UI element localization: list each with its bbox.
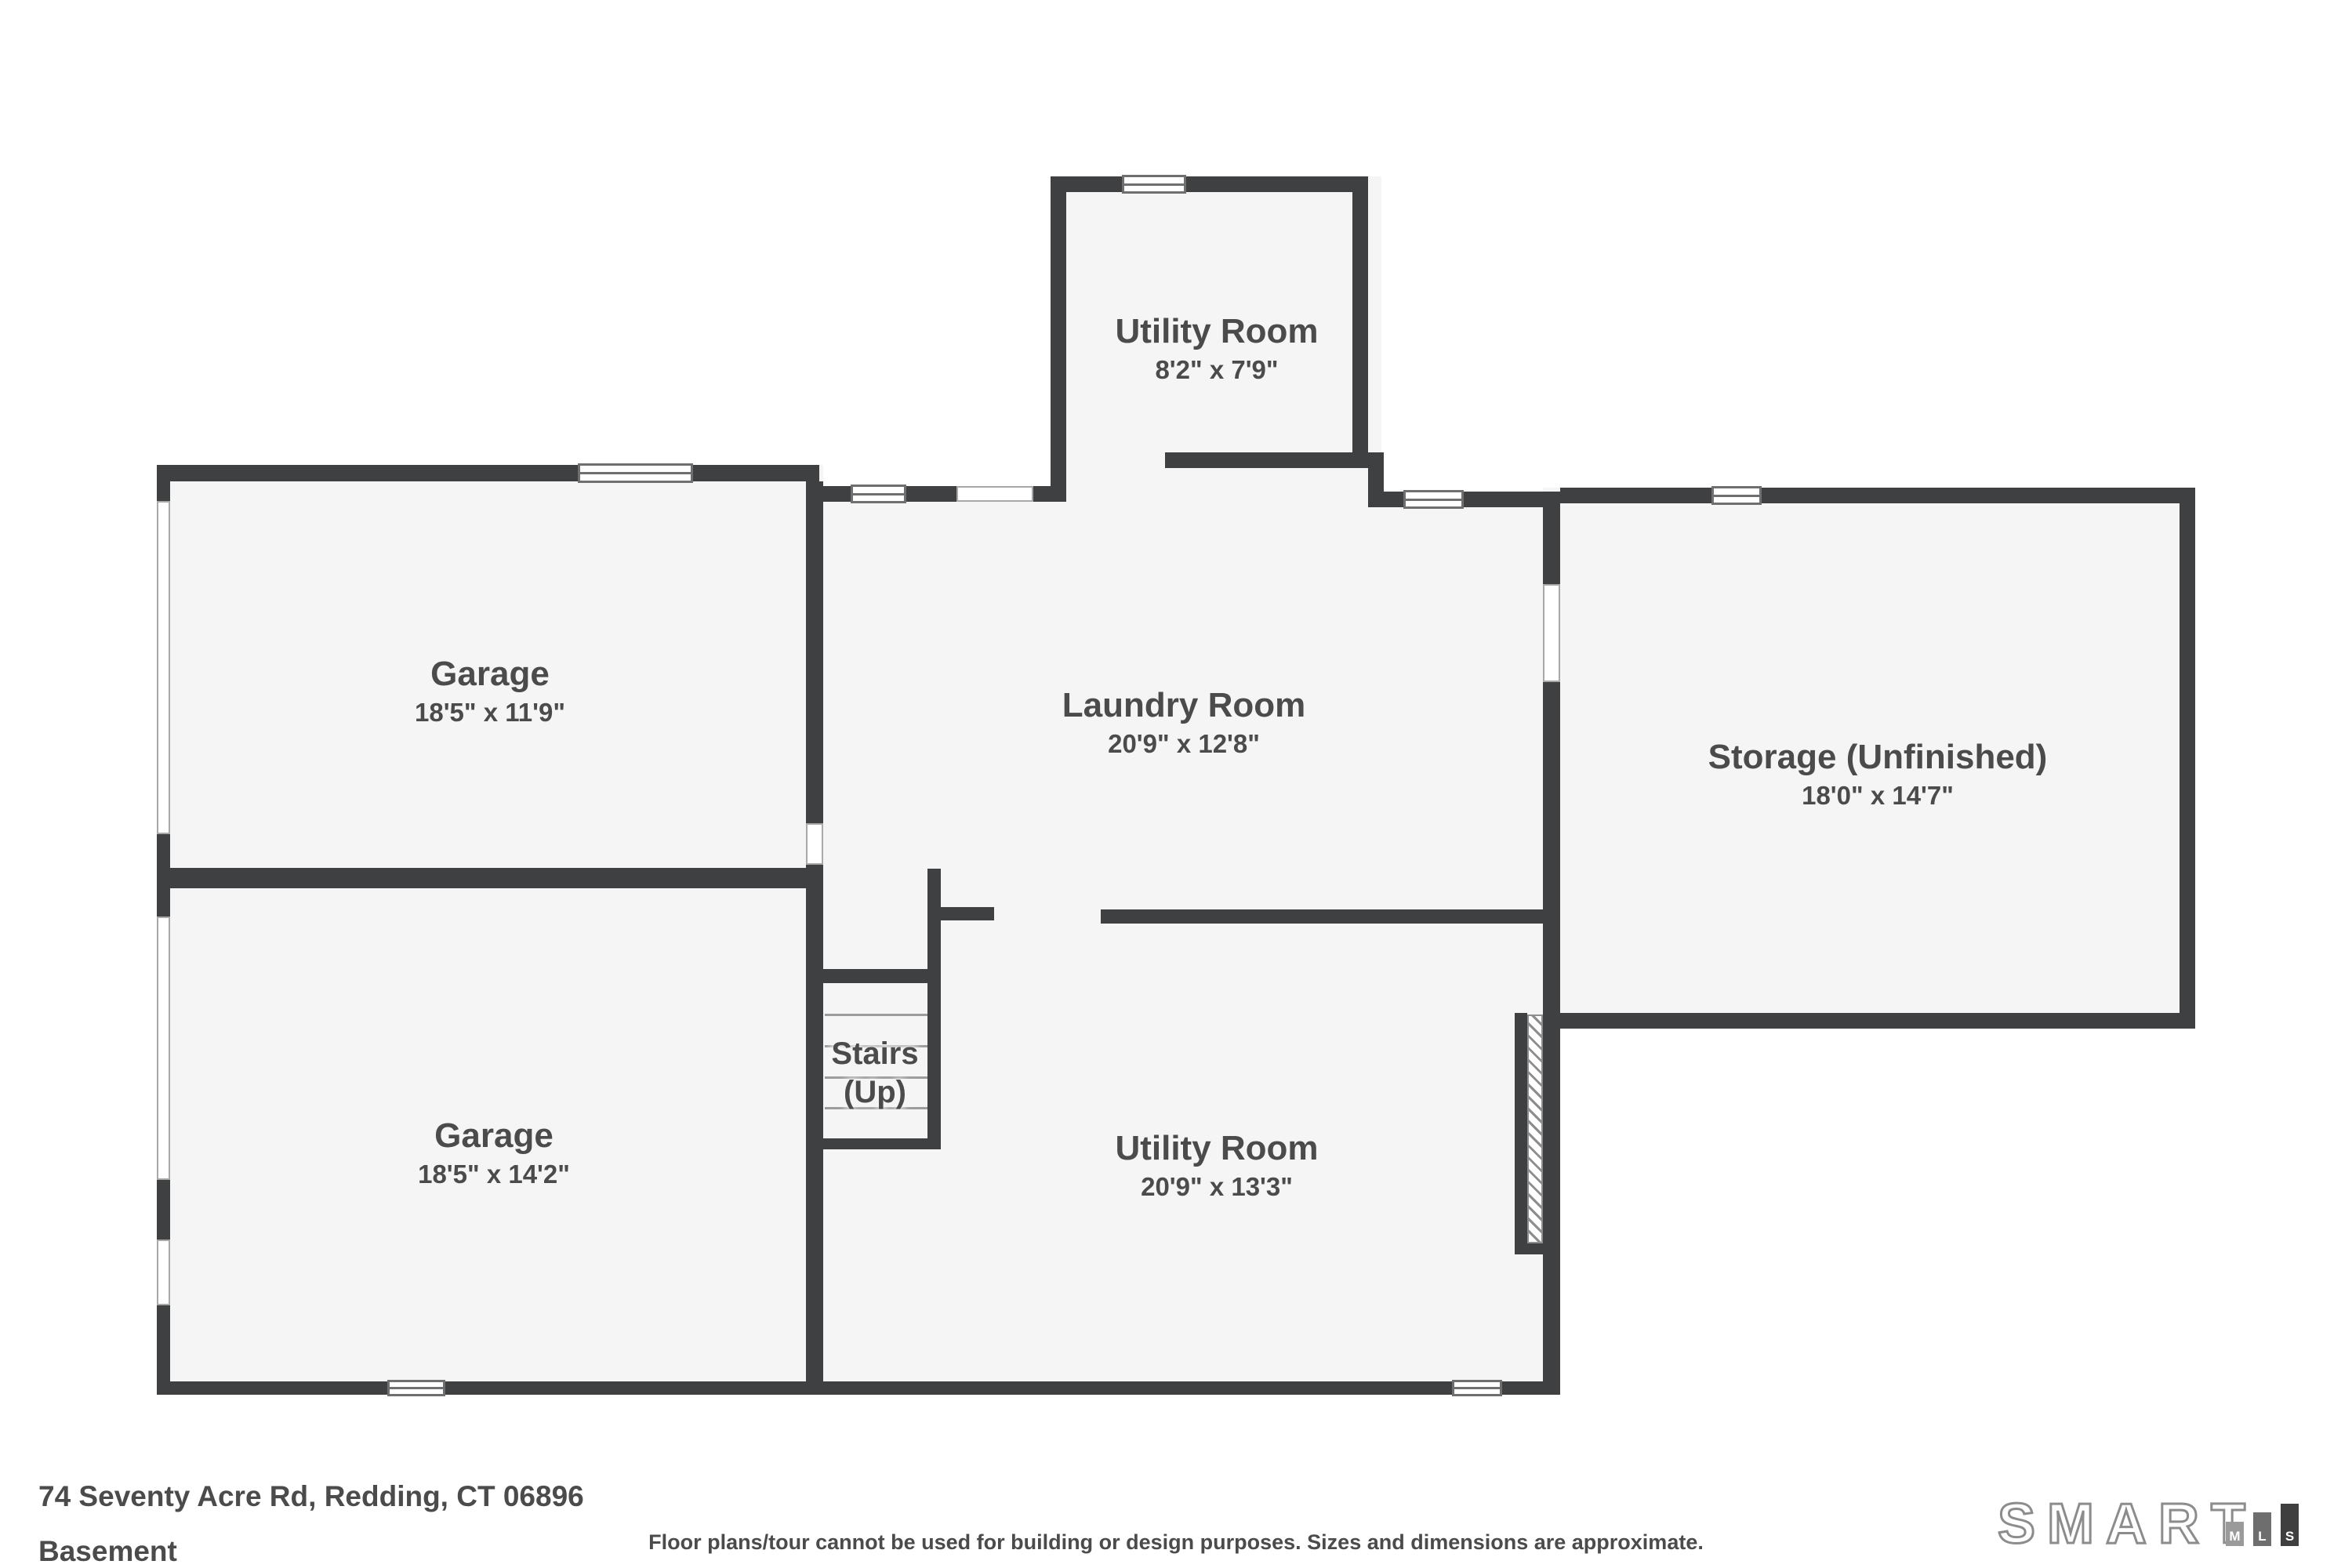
room-label-utility-lower: Utility Room 20'9" x 13'3" — [1115, 1129, 1318, 1203]
stair-tread — [825, 1014, 927, 1016]
hatched-area — [1527, 1014, 1543, 1243]
wall-segment — [1515, 1013, 1527, 1254]
wall-stairs-south — [823, 1138, 941, 1149]
smartmls-bar-l: L — [2253, 1512, 2271, 1546]
room-label-garage-upper: Garage 18'5" x 11'9" — [415, 655, 565, 728]
wall-garage-divider — [170, 868, 806, 888]
wall-storage-south — [1560, 1013, 2195, 1029]
wall-garage-north — [157, 465, 819, 481]
wall-utility-top-east — [1352, 176, 1368, 468]
window-opening — [157, 916, 170, 1180]
wall-storage-east — [2180, 488, 2195, 1029]
room-name: Storage (Unfinished) — [1708, 738, 2048, 776]
window-opening — [1543, 584, 1560, 682]
address: 74 Seventy Acre Rd, Redding, CT 06896 — [38, 1480, 584, 1513]
room-dims: 18'0" x 14'7" — [1708, 780, 2048, 811]
room-name: Utility Room — [1115, 1129, 1318, 1167]
wall-stairs-east — [927, 869, 941, 1147]
room-label-utility-top: Utility Room 8'2" x 7'9" — [1115, 312, 1318, 386]
floor-garages — [157, 465, 823, 1394]
room-name: Utility Room — [1115, 312, 1318, 350]
room-dims: 18'5" x 14'2" — [418, 1159, 570, 1190]
room-dims: 20'9" x 13'3" — [1115, 1171, 1318, 1203]
window — [387, 1380, 445, 1396]
room-dims: 18'5" x 11'9" — [415, 697, 565, 728]
wall-stub — [941, 907, 994, 920]
wall-laundry-northeast — [1368, 492, 1560, 507]
room-label-garage-lower: Garage 18'5" x 14'2" — [418, 1116, 570, 1190]
wall-utility-top-south — [1165, 452, 1368, 468]
door-opening — [956, 486, 1033, 502]
wall-south — [157, 1381, 1560, 1395]
room-label-stairs: Stairs (Up) — [831, 1036, 918, 1111]
smartmls-brand-text: SMART — [1998, 1496, 2257, 1552]
wall-utility-top-west — [1051, 176, 1066, 502]
wall-stairs-north — [823, 969, 927, 983]
room-label-storage: Storage (Unfinished) 18'0" x 14'7" — [1708, 738, 2048, 811]
window — [1122, 175, 1186, 194]
room-dims: (Up) — [831, 1073, 918, 1111]
window — [578, 463, 693, 483]
room-name: Laundry Room — [1062, 686, 1305, 724]
floor-laundry-utility — [808, 492, 1560, 1394]
wall-storage-north — [1560, 488, 2195, 503]
window — [1452, 1380, 1502, 1396]
room-name: Garage — [418, 1116, 570, 1155]
window — [1403, 490, 1464, 509]
window-opening — [157, 1240, 170, 1305]
window — [1711, 486, 1762, 505]
room-name: Garage — [415, 655, 565, 693]
smartmls-bar-m: M — [2226, 1522, 2244, 1546]
smartmls-logo: SMART M L S — [1998, 1495, 2307, 1546]
floorplan-page: Utility Room 8'2" x 7'9" Garage 18'5" x … — [0, 0, 2352, 1568]
wall-utility-top-north — [1051, 176, 1368, 192]
smartmls-bar-s: S — [2281, 1504, 2299, 1546]
window-opening — [157, 501, 170, 834]
window — [851, 485, 906, 503]
room-label-laundry: Laundry Room 20'9" x 12'8" — [1062, 686, 1305, 760]
room-dims: 8'2" x 7'9" — [1115, 354, 1318, 386]
room-name: Stairs — [831, 1036, 918, 1072]
window-opening — [806, 823, 823, 865]
wall-utility-lower-north — [1101, 909, 1543, 924]
wall-garage-east — [806, 481, 823, 1381]
room-dims: 20'9" x 12'8" — [1062, 728, 1305, 760]
